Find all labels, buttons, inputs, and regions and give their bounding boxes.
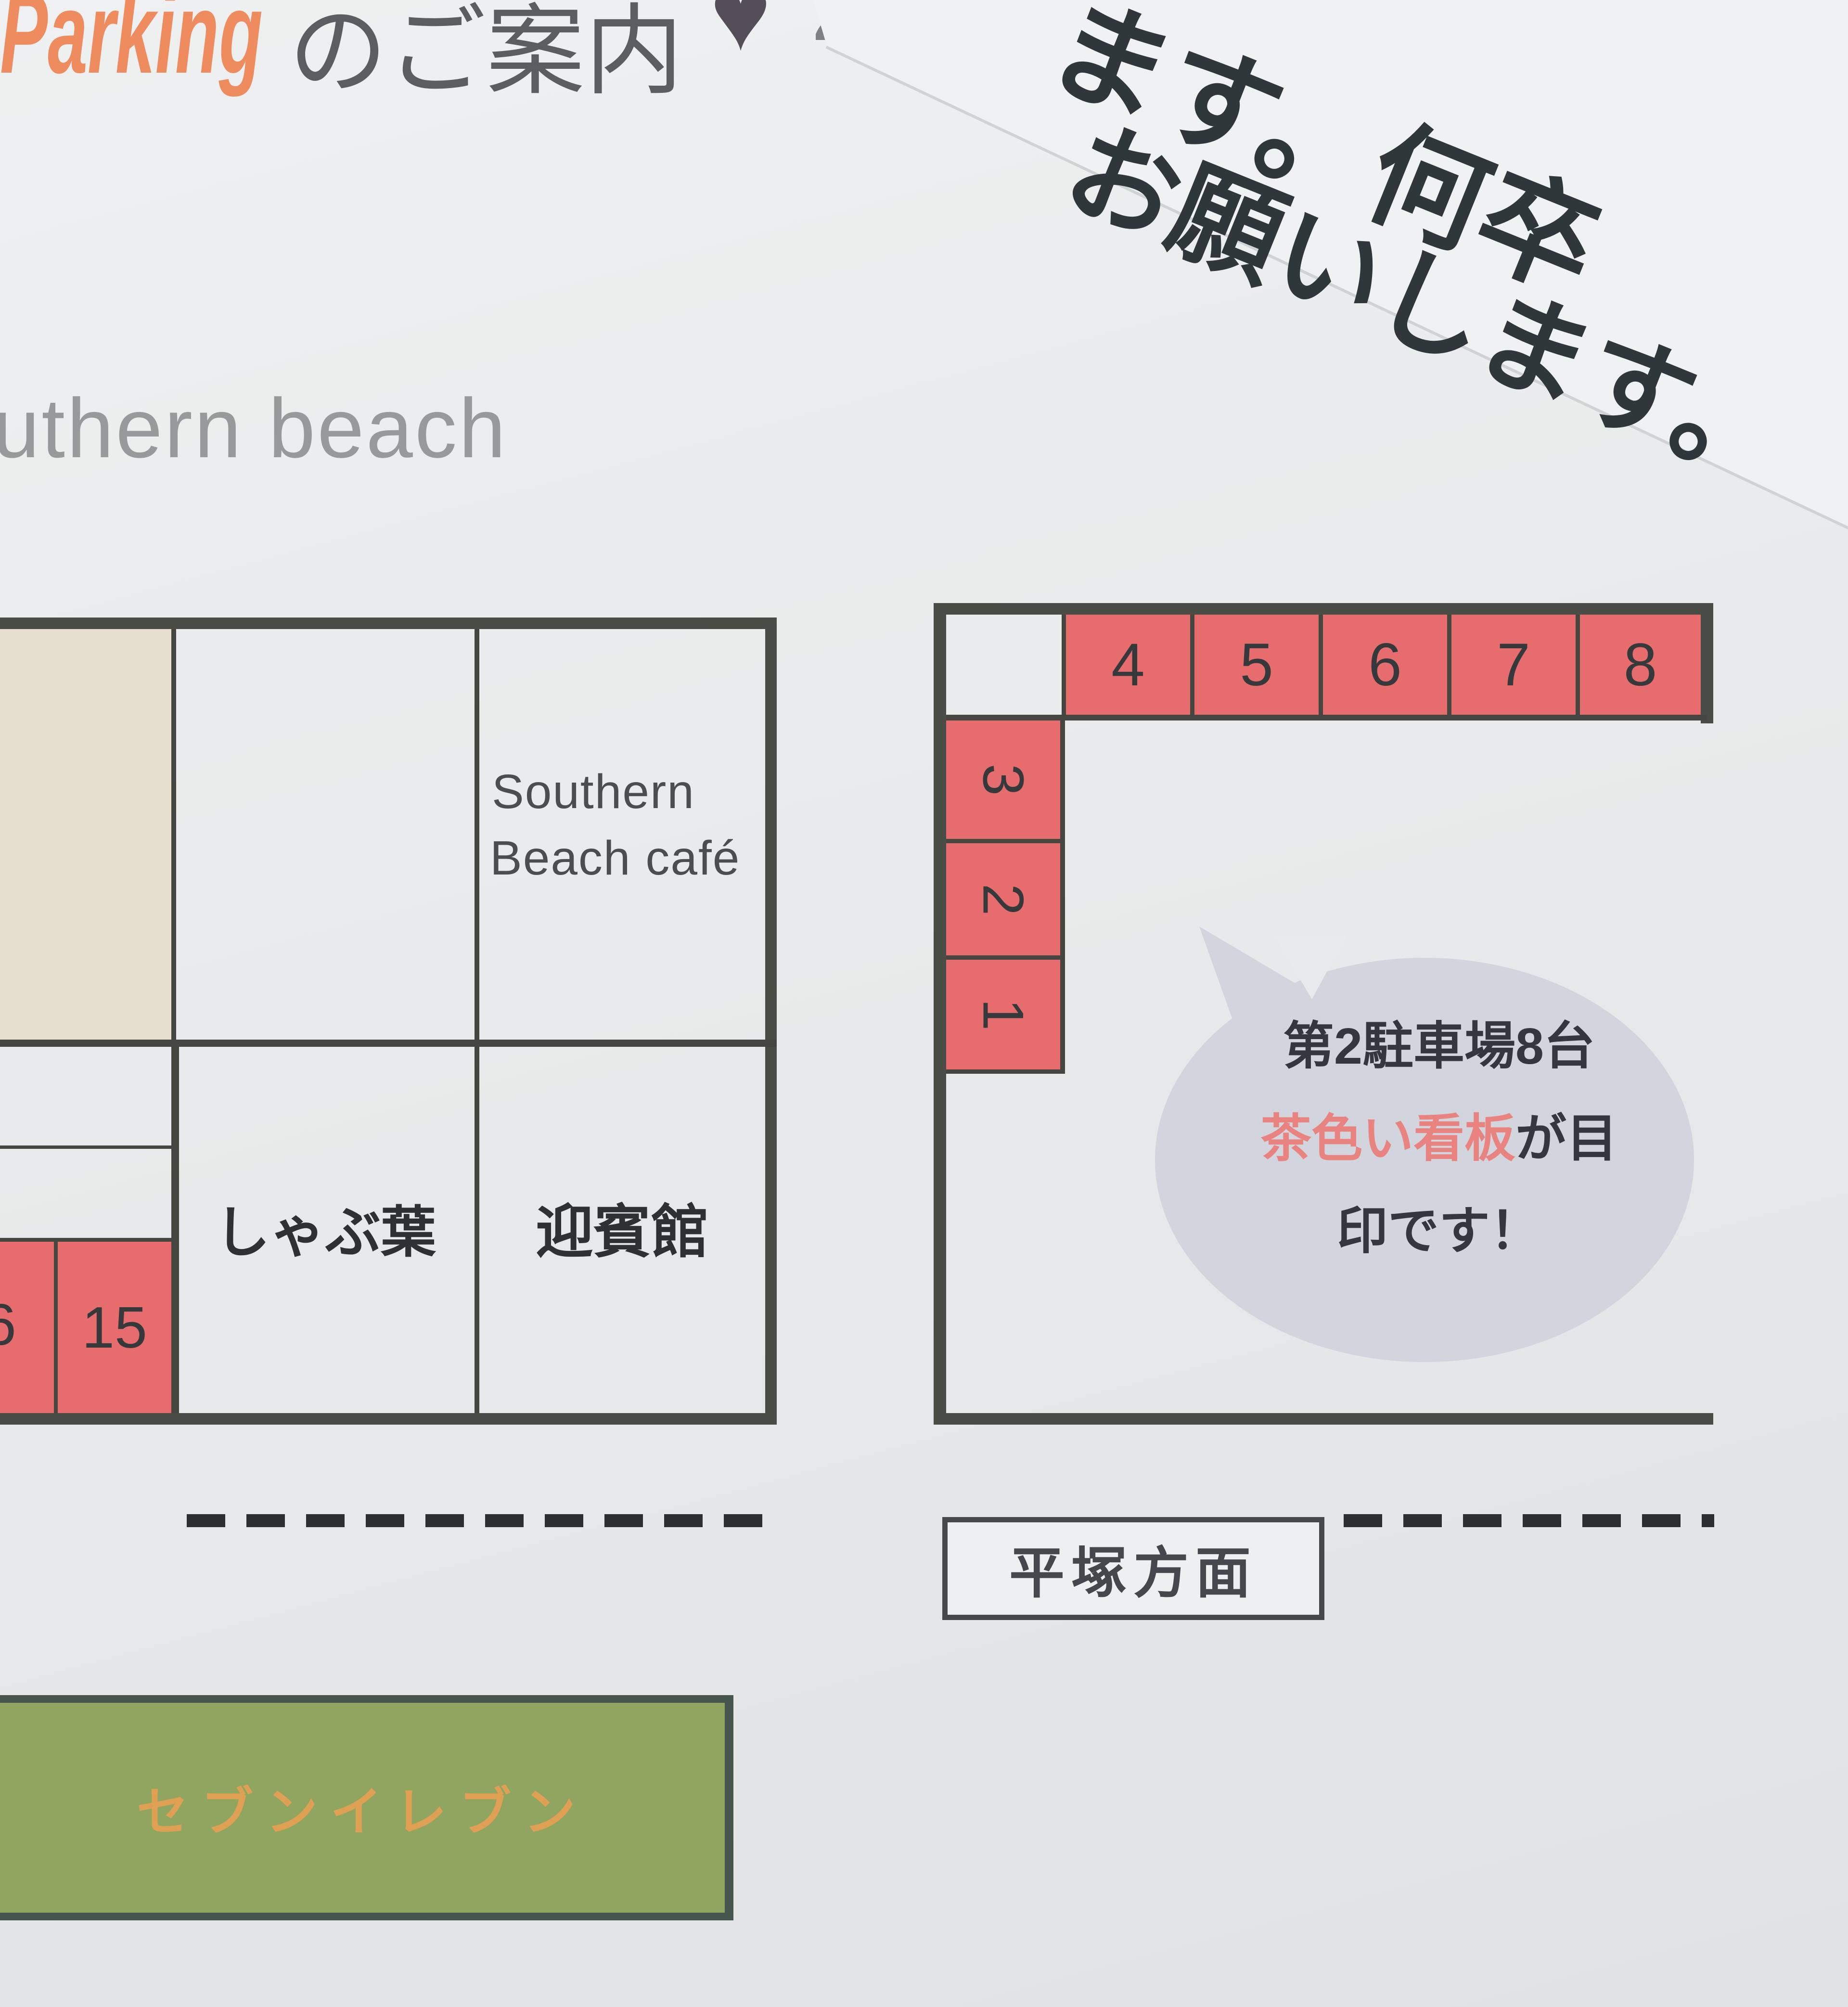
col-right-border bbox=[1060, 720, 1065, 1074]
left-map-hline-mid bbox=[0, 1040, 777, 1047]
stall-number-3: 3 bbox=[970, 764, 1037, 796]
col-divider-b bbox=[946, 955, 1065, 960]
row-divider-c bbox=[1319, 615, 1323, 715]
row-divider-d bbox=[1447, 615, 1451, 715]
cafe-label-line2: Beach café bbox=[490, 831, 740, 886]
left-map-right-border bbox=[765, 618, 777, 1425]
bubble-text: 第2駐車場8台 茶色い看板が目 印です！ bbox=[1165, 1000, 1713, 1277]
stall-number-4: 4 bbox=[1111, 630, 1145, 699]
parking-stall-5: 5 bbox=[1194, 615, 1319, 715]
stall-number-2: 2 bbox=[970, 883, 1037, 915]
parking-stall-7: 7 bbox=[1451, 615, 1576, 715]
stall-number-5: 5 bbox=[1240, 630, 1273, 699]
bubble-line3: 印です！ bbox=[1165, 1185, 1713, 1277]
row-divider-b bbox=[1190, 615, 1194, 715]
right-map-top-border bbox=[934, 603, 1713, 615]
store-building: セブンイレブン bbox=[0, 1695, 733, 1920]
bubble-line2-highlight: 茶色い看板 bbox=[1260, 1110, 1515, 1167]
right-map-left-border bbox=[934, 603, 946, 1425]
col-divider-a bbox=[946, 839, 1065, 843]
heart-icon: ♥ bbox=[710, 0, 771, 74]
right-map-right-stub bbox=[1701, 603, 1713, 723]
restaurant-geihinkan-label: 迎賓館 bbox=[479, 1185, 765, 1269]
beach-area-label: uthern beach bbox=[0, 380, 508, 477]
parking-stall-15: 15 bbox=[58, 1242, 171, 1413]
col-bottom-border bbox=[946, 1069, 1065, 1074]
cafe-label-line1: Southern bbox=[492, 764, 695, 820]
stall-number-15: 15 bbox=[82, 1294, 147, 1361]
stall-number-7: 7 bbox=[1497, 630, 1530, 699]
stall-number-partial: 6 bbox=[0, 1291, 16, 1358]
parking-stall-4: 4 bbox=[1066, 615, 1190, 715]
left-map-vline-1 bbox=[171, 629, 176, 1040]
restaurant-shabu-label: しゃぶ葉 bbox=[176, 1188, 475, 1268]
parking-stall-2: 2 bbox=[946, 843, 1060, 955]
road-dash-right bbox=[1344, 1514, 1714, 1527]
bubble-line2: 茶色い看板が目 bbox=[1165, 1093, 1713, 1185]
row-divider-e bbox=[1576, 615, 1580, 715]
bubble-line2-rest: が目 bbox=[1515, 1110, 1617, 1167]
parking-stall-1: 1 bbox=[946, 960, 1060, 1069]
road-dash-left bbox=[187, 1514, 775, 1527]
left-map-top-border bbox=[0, 618, 777, 629]
store-name-label: セブンイレブン bbox=[137, 1770, 588, 1845]
page-title-japanese: のご案内 bbox=[289, 0, 683, 114]
direction-sign-box: 平塚方面 bbox=[942, 1517, 1324, 1620]
left-map-vline-2 bbox=[475, 629, 479, 1413]
direction-sign-label: 平塚方面 bbox=[1009, 1529, 1258, 1608]
stall-number-1: 1 bbox=[970, 999, 1037, 1031]
bubble-line1: 第2駐車場8台 bbox=[1165, 1000, 1713, 1093]
parking-stall-6: 6 bbox=[1323, 615, 1447, 715]
left-map-bottom-border bbox=[0, 1413, 777, 1425]
right-row-bottom-line bbox=[946, 715, 1707, 720]
stall-number-6: 6 bbox=[1368, 630, 1402, 699]
parking-guide-photo: Parking のご案内 ♥ 2 uthern beach Southern B… bbox=[0, 0, 1848, 2007]
page-title-english: Parking bbox=[0, 0, 263, 99]
left-stalls-divider bbox=[54, 1242, 58, 1413]
row-divider-a bbox=[1062, 615, 1066, 715]
parking-stall-8: 8 bbox=[1580, 615, 1701, 715]
left-map-hline-small bbox=[0, 1145, 176, 1149]
beige-building bbox=[0, 629, 171, 1040]
parking-stall-partial: 6 bbox=[0, 1242, 54, 1413]
right-map-bottom-border bbox=[934, 1413, 1713, 1425]
left-stalls-top-border bbox=[0, 1238, 176, 1242]
stall-number-8: 8 bbox=[1624, 630, 1657, 699]
parking-stall-3: 3 bbox=[946, 720, 1060, 839]
